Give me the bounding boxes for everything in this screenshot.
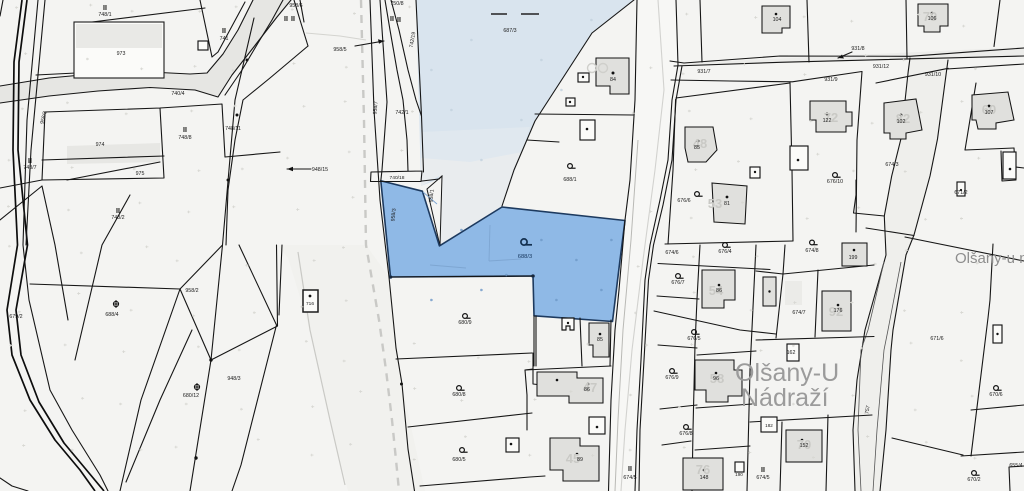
svg-text:670/6: 670/6 bbox=[989, 392, 1002, 398]
svg-text:53: 53 bbox=[708, 196, 722, 211]
svg-text:II: II bbox=[761, 467, 765, 474]
svg-text:176: 176 bbox=[834, 308, 843, 314]
svg-text:674/8: 674/8 bbox=[805, 248, 818, 254]
svg-text:973: 973 bbox=[117, 51, 126, 57]
svg-text:II: II bbox=[183, 127, 187, 134]
svg-text:85: 85 bbox=[694, 145, 700, 151]
svg-text:96: 96 bbox=[713, 376, 719, 382]
svg-text:II: II bbox=[284, 16, 288, 23]
svg-text:II: II bbox=[628, 466, 632, 473]
svg-text:162: 162 bbox=[787, 350, 796, 356]
svg-text:Olšany-u nád: Olšany-u nád bbox=[955, 250, 1024, 267]
svg-text:107: 107 bbox=[985, 110, 994, 116]
svg-text:748/2: 748/2 bbox=[111, 215, 124, 221]
svg-text:676/7: 676/7 bbox=[671, 280, 684, 286]
svg-text:86: 86 bbox=[584, 387, 590, 393]
svg-text:89: 89 bbox=[577, 457, 583, 463]
svg-text:676/8: 676/8 bbox=[679, 431, 692, 437]
svg-text:688/3: 688/3 bbox=[518, 254, 533, 260]
svg-text:II: II bbox=[397, 17, 401, 24]
svg-text:974: 974 bbox=[96, 142, 105, 148]
svg-text:975: 975 bbox=[136, 171, 145, 177]
svg-text:122: 122 bbox=[823, 118, 832, 124]
svg-text:687/3: 687/3 bbox=[503, 28, 516, 34]
svg-text:190: 190 bbox=[735, 472, 743, 477]
svg-text:688/4: 688/4 bbox=[105, 312, 118, 318]
svg-text:680/8: 680/8 bbox=[452, 392, 465, 398]
svg-text:948/15: 948/15 bbox=[312, 167, 328, 173]
svg-text:679/2: 679/2 bbox=[9, 314, 22, 320]
svg-text:688/1: 688/1 bbox=[563, 177, 576, 183]
svg-text:671/6: 671/6 bbox=[930, 336, 943, 342]
svg-text:740/4: 740/4 bbox=[171, 91, 184, 97]
svg-text:748/7: 748/7 bbox=[23, 165, 36, 171]
svg-text:958/5: 958/5 bbox=[333, 47, 346, 53]
svg-text:958/3: 958/3 bbox=[390, 208, 397, 222]
svg-text:750/8: 750/8 bbox=[390, 1, 403, 7]
svg-text:716: 716 bbox=[306, 301, 314, 307]
svg-text:674/5: 674/5 bbox=[756, 475, 769, 481]
svg-text:104: 104 bbox=[773, 17, 782, 23]
svg-text:931/12: 931/12 bbox=[873, 64, 889, 70]
svg-text:676/5: 676/5 bbox=[687, 336, 700, 342]
svg-text:674/3: 674/3 bbox=[885, 162, 898, 168]
svg-text:676/10: 676/10 bbox=[827, 179, 843, 185]
svg-text:740/18: 740/18 bbox=[390, 175, 405, 181]
svg-text:676/6: 676/6 bbox=[677, 198, 690, 204]
svg-text:676/4: 676/4 bbox=[718, 249, 731, 255]
svg-text:671/2: 671/2 bbox=[954, 190, 967, 196]
svg-text:148: 148 bbox=[700, 475, 709, 481]
svg-text:958/2: 958/2 bbox=[185, 288, 198, 294]
svg-text:748/8: 748/8 bbox=[178, 135, 191, 141]
svg-text:670/2: 670/2 bbox=[967, 477, 980, 483]
svg-text:674/7: 674/7 bbox=[792, 310, 805, 316]
svg-text:199: 199 bbox=[849, 255, 858, 261]
svg-text:680/9: 680/9 bbox=[458, 320, 471, 326]
svg-text:931/7: 931/7 bbox=[697, 69, 710, 75]
svg-text:931/9: 931/9 bbox=[824, 77, 837, 83]
svg-text:152: 152 bbox=[800, 443, 809, 449]
svg-text:958/6: 958/6 bbox=[289, 3, 302, 9]
svg-text:II: II bbox=[103, 5, 107, 12]
svg-text:84: 84 bbox=[610, 77, 616, 83]
svg-text:931/8: 931/8 bbox=[851, 46, 864, 52]
svg-text:958/7: 958/7 bbox=[372, 101, 379, 115]
svg-text:680/5: 680/5 bbox=[452, 457, 465, 463]
svg-text:106: 106 bbox=[928, 16, 937, 22]
svg-text:748/11: 748/11 bbox=[225, 126, 241, 132]
svg-text:655/4: 655/4 bbox=[1009, 463, 1022, 469]
svg-text:81: 81 bbox=[724, 201, 730, 207]
svg-text:85: 85 bbox=[597, 337, 603, 343]
svg-text:948/3: 948/3 bbox=[227, 376, 240, 382]
svg-text:958/1: 958/1 bbox=[428, 189, 435, 203]
svg-text:674/6: 674/6 bbox=[665, 250, 678, 256]
svg-text:680/12: 680/12 bbox=[183, 393, 199, 399]
svg-text:86: 86 bbox=[716, 288, 722, 294]
svg-text:II: II bbox=[291, 16, 295, 23]
svg-text:II: II bbox=[222, 28, 226, 35]
svg-text:931/10: 931/10 bbox=[925, 72, 941, 78]
svg-text:102: 102 bbox=[897, 119, 906, 125]
svg-text:II: II bbox=[390, 16, 394, 23]
svg-text:741: 741 bbox=[220, 36, 229, 42]
svg-text:748/1: 748/1 bbox=[98, 12, 111, 18]
svg-text:II: II bbox=[116, 208, 120, 215]
svg-text:II: II bbox=[28, 158, 32, 165]
svg-text:Olšany-U: Olšany-U bbox=[735, 359, 839, 387]
svg-text:Nádraží: Nádraží bbox=[741, 384, 829, 412]
svg-text:674/5: 674/5 bbox=[623, 475, 636, 481]
svg-text:676/9: 676/9 bbox=[665, 375, 678, 381]
svg-text:182: 182 bbox=[765, 423, 773, 428]
svg-text:742/1: 742/1 bbox=[395, 110, 408, 116]
